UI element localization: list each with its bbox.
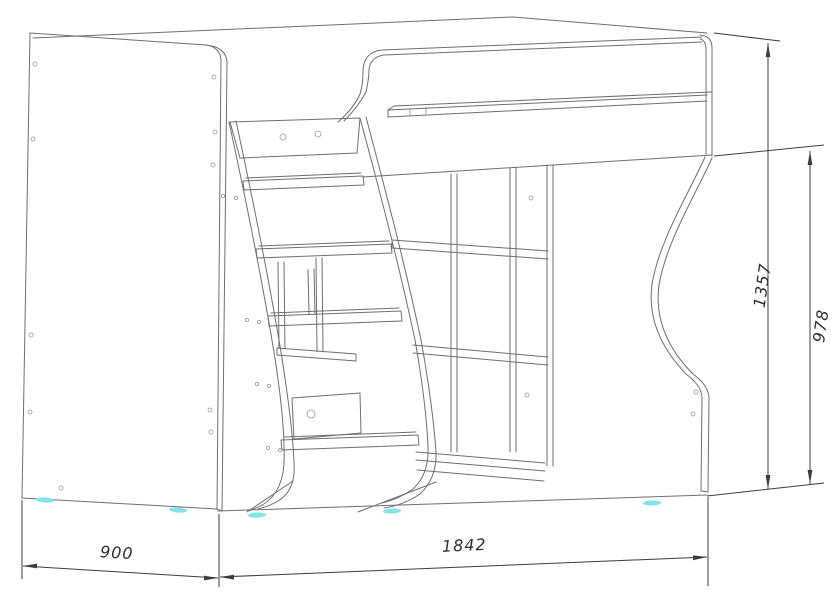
extension-line-floor — [707, 483, 824, 496]
dimension-label-1842: 1842 — [442, 535, 487, 556]
extension-line-top — [714, 33, 780, 41]
arrowhead — [808, 151, 813, 165]
arrowhead — [23, 564, 37, 569]
arrowhead — [204, 576, 218, 581]
dimension-label-1357: 1357 — [750, 262, 775, 309]
foot-accent — [383, 508, 401, 514]
ladder-tread-3 — [268, 308, 402, 326]
foot-accent — [169, 507, 187, 513]
bed-box — [33, 17, 712, 177]
shelf-front-bottom-edge — [388, 101, 707, 117]
drawing-canvas: 900 1842 1357 978 — [0, 0, 840, 593]
left-side-panel — [22, 33, 227, 511]
bed-box-bottom-edge — [363, 155, 712, 177]
extension-line-bed-bottom — [714, 145, 824, 156]
right-side-panel — [651, 157, 712, 492]
ladder-top-riser — [230, 118, 360, 158]
foot-accent — [248, 512, 266, 518]
technical-drawing: 900 1842 1357 978 — [0, 0, 840, 593]
arrowhead — [220, 575, 234, 580]
arrowhead — [808, 470, 813, 484]
shelf-back-top-edge — [394, 92, 711, 106]
drawer-finger-hole — [307, 410, 315, 418]
back-rail-top-edge — [33, 17, 707, 38]
ladder-right-stringer-foot — [358, 482, 436, 512]
ladder-tread-2 — [256, 241, 392, 258]
wall-shelf — [388, 92, 711, 117]
ladder-divider-2a — [316, 258, 317, 352]
dimension-under-bed-978: 978 — [714, 145, 833, 484]
dimension-height-1357: 1357 — [707, 33, 824, 496]
ladder-left-stringer-foot — [247, 481, 293, 512]
right-panel-curve-inner — [651, 157, 705, 491]
dimension-depth-900: 900 — [22, 500, 219, 587]
dimension-label-900: 900 — [99, 542, 134, 563]
foot-accent — [643, 500, 661, 506]
ladder-divider-2b — [322, 258, 323, 352]
arrowhead — [693, 555, 707, 560]
left-panel-edge-thickness — [206, 45, 227, 511]
arrowhead — [766, 475, 771, 489]
shelf-front-top-edge — [388, 95, 707, 110]
ladder-divider-1b — [284, 262, 285, 349]
dimension-label-978: 978 — [809, 308, 832, 344]
right-panel-bottom-edge — [701, 491, 708, 492]
dimension-width-1842: 1842 — [220, 497, 708, 586]
foot-accent — [36, 497, 54, 503]
dimension-line-900 — [23, 566, 218, 578]
ladder — [221, 117, 436, 512]
ladder-divider-3a — [308, 270, 309, 314]
bed-corner-post-inner — [700, 39, 706, 154]
right-panel-curve-outer — [658, 158, 712, 492]
under-bed-shelving — [392, 165, 553, 481]
dimension-line-1842 — [220, 557, 707, 577]
floor-front-edge — [218, 495, 707, 511]
left-panel-outline — [22, 33, 221, 509]
ladder-divider-3b — [314, 269, 315, 314]
ladder-drawer-front — [292, 393, 361, 439]
arrowhead — [766, 43, 771, 57]
shelving-plinth — [417, 470, 544, 481]
ladder-tread-1 — [243, 173, 364, 190]
ladder-tread-4 — [281, 432, 419, 450]
